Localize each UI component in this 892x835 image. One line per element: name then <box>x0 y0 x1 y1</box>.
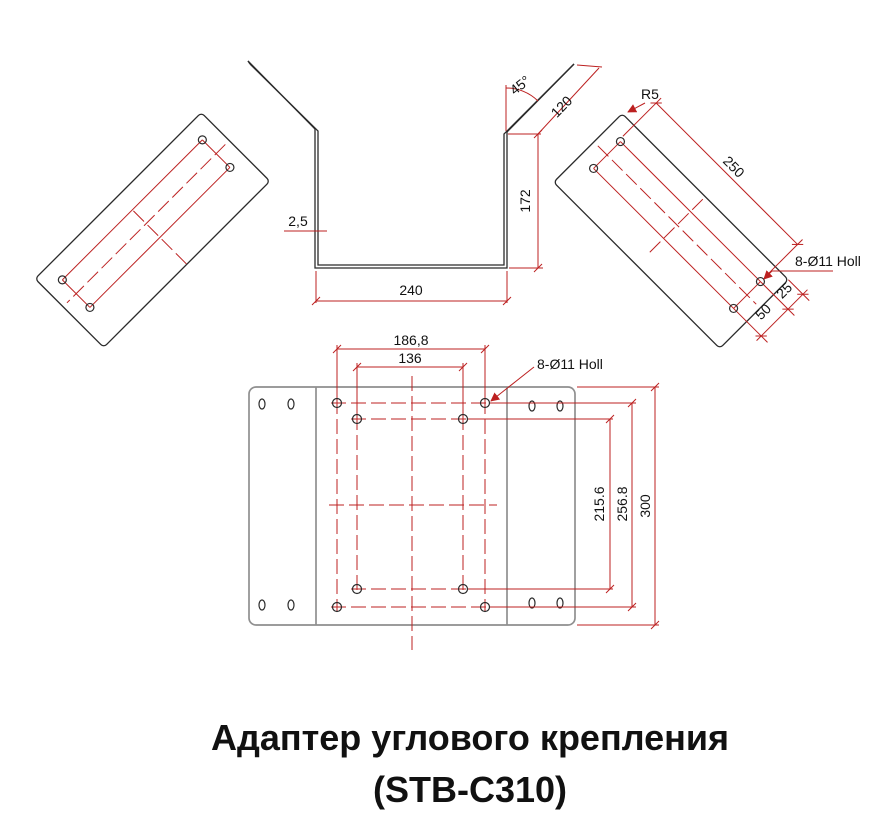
slot-hole <box>288 600 294 610</box>
drawing-canvas: 2,5 240 172 120 45° <box>0 0 892 835</box>
dim-hole-edge-offset: 25 <box>773 279 795 301</box>
right-angled-plate-view: 250 25 50 R5 8-Ø11 Holl <box>554 79 861 370</box>
profile-view: 2,5 240 172 120 45° <box>248 61 602 305</box>
dim-outer-hole-pitch-y: 256.8 <box>614 486 630 521</box>
drawing-title: Адаптер углового крепления (STB-C310) <box>48 712 892 816</box>
dim-wall-height: 172 <box>517 189 533 213</box>
title-line2: (STB-C310) <box>48 764 892 816</box>
dim-inner-hole-pitch-y: 215.6 <box>591 486 607 521</box>
dim-base-width: 240 <box>399 282 423 298</box>
dim-thickness: 2,5 <box>288 213 308 229</box>
dim-plate-height: 300 <box>637 494 653 518</box>
bottom-plate-view: 186,8 136 8-Ø11 Holl 215.6 256.8 300 <box>249 332 659 650</box>
dim-hole-pitch-length: 250 <box>720 153 748 181</box>
dim-wing-length: 120 <box>548 92 576 120</box>
dim-inner-hole-pitch-x: 136 <box>398 350 422 366</box>
slot-hole <box>259 600 265 610</box>
hole-note: 8-Ø11 Holl <box>795 253 861 269</box>
dim-outer-hole-pitch-x: 186,8 <box>393 332 428 348</box>
hole-note: 8-Ø11 Holl <box>537 356 603 372</box>
technical-drawing: 2,5 240 172 120 45° <box>0 0 892 708</box>
left-angled-plate-view <box>35 113 270 348</box>
dim-corner-radius: R5 <box>641 86 659 102</box>
title-line1: Адаптер углового крепления <box>48 712 892 764</box>
channel-inner-line <box>250 64 572 265</box>
slot-hole <box>259 399 265 409</box>
slot-hole <box>288 399 294 409</box>
